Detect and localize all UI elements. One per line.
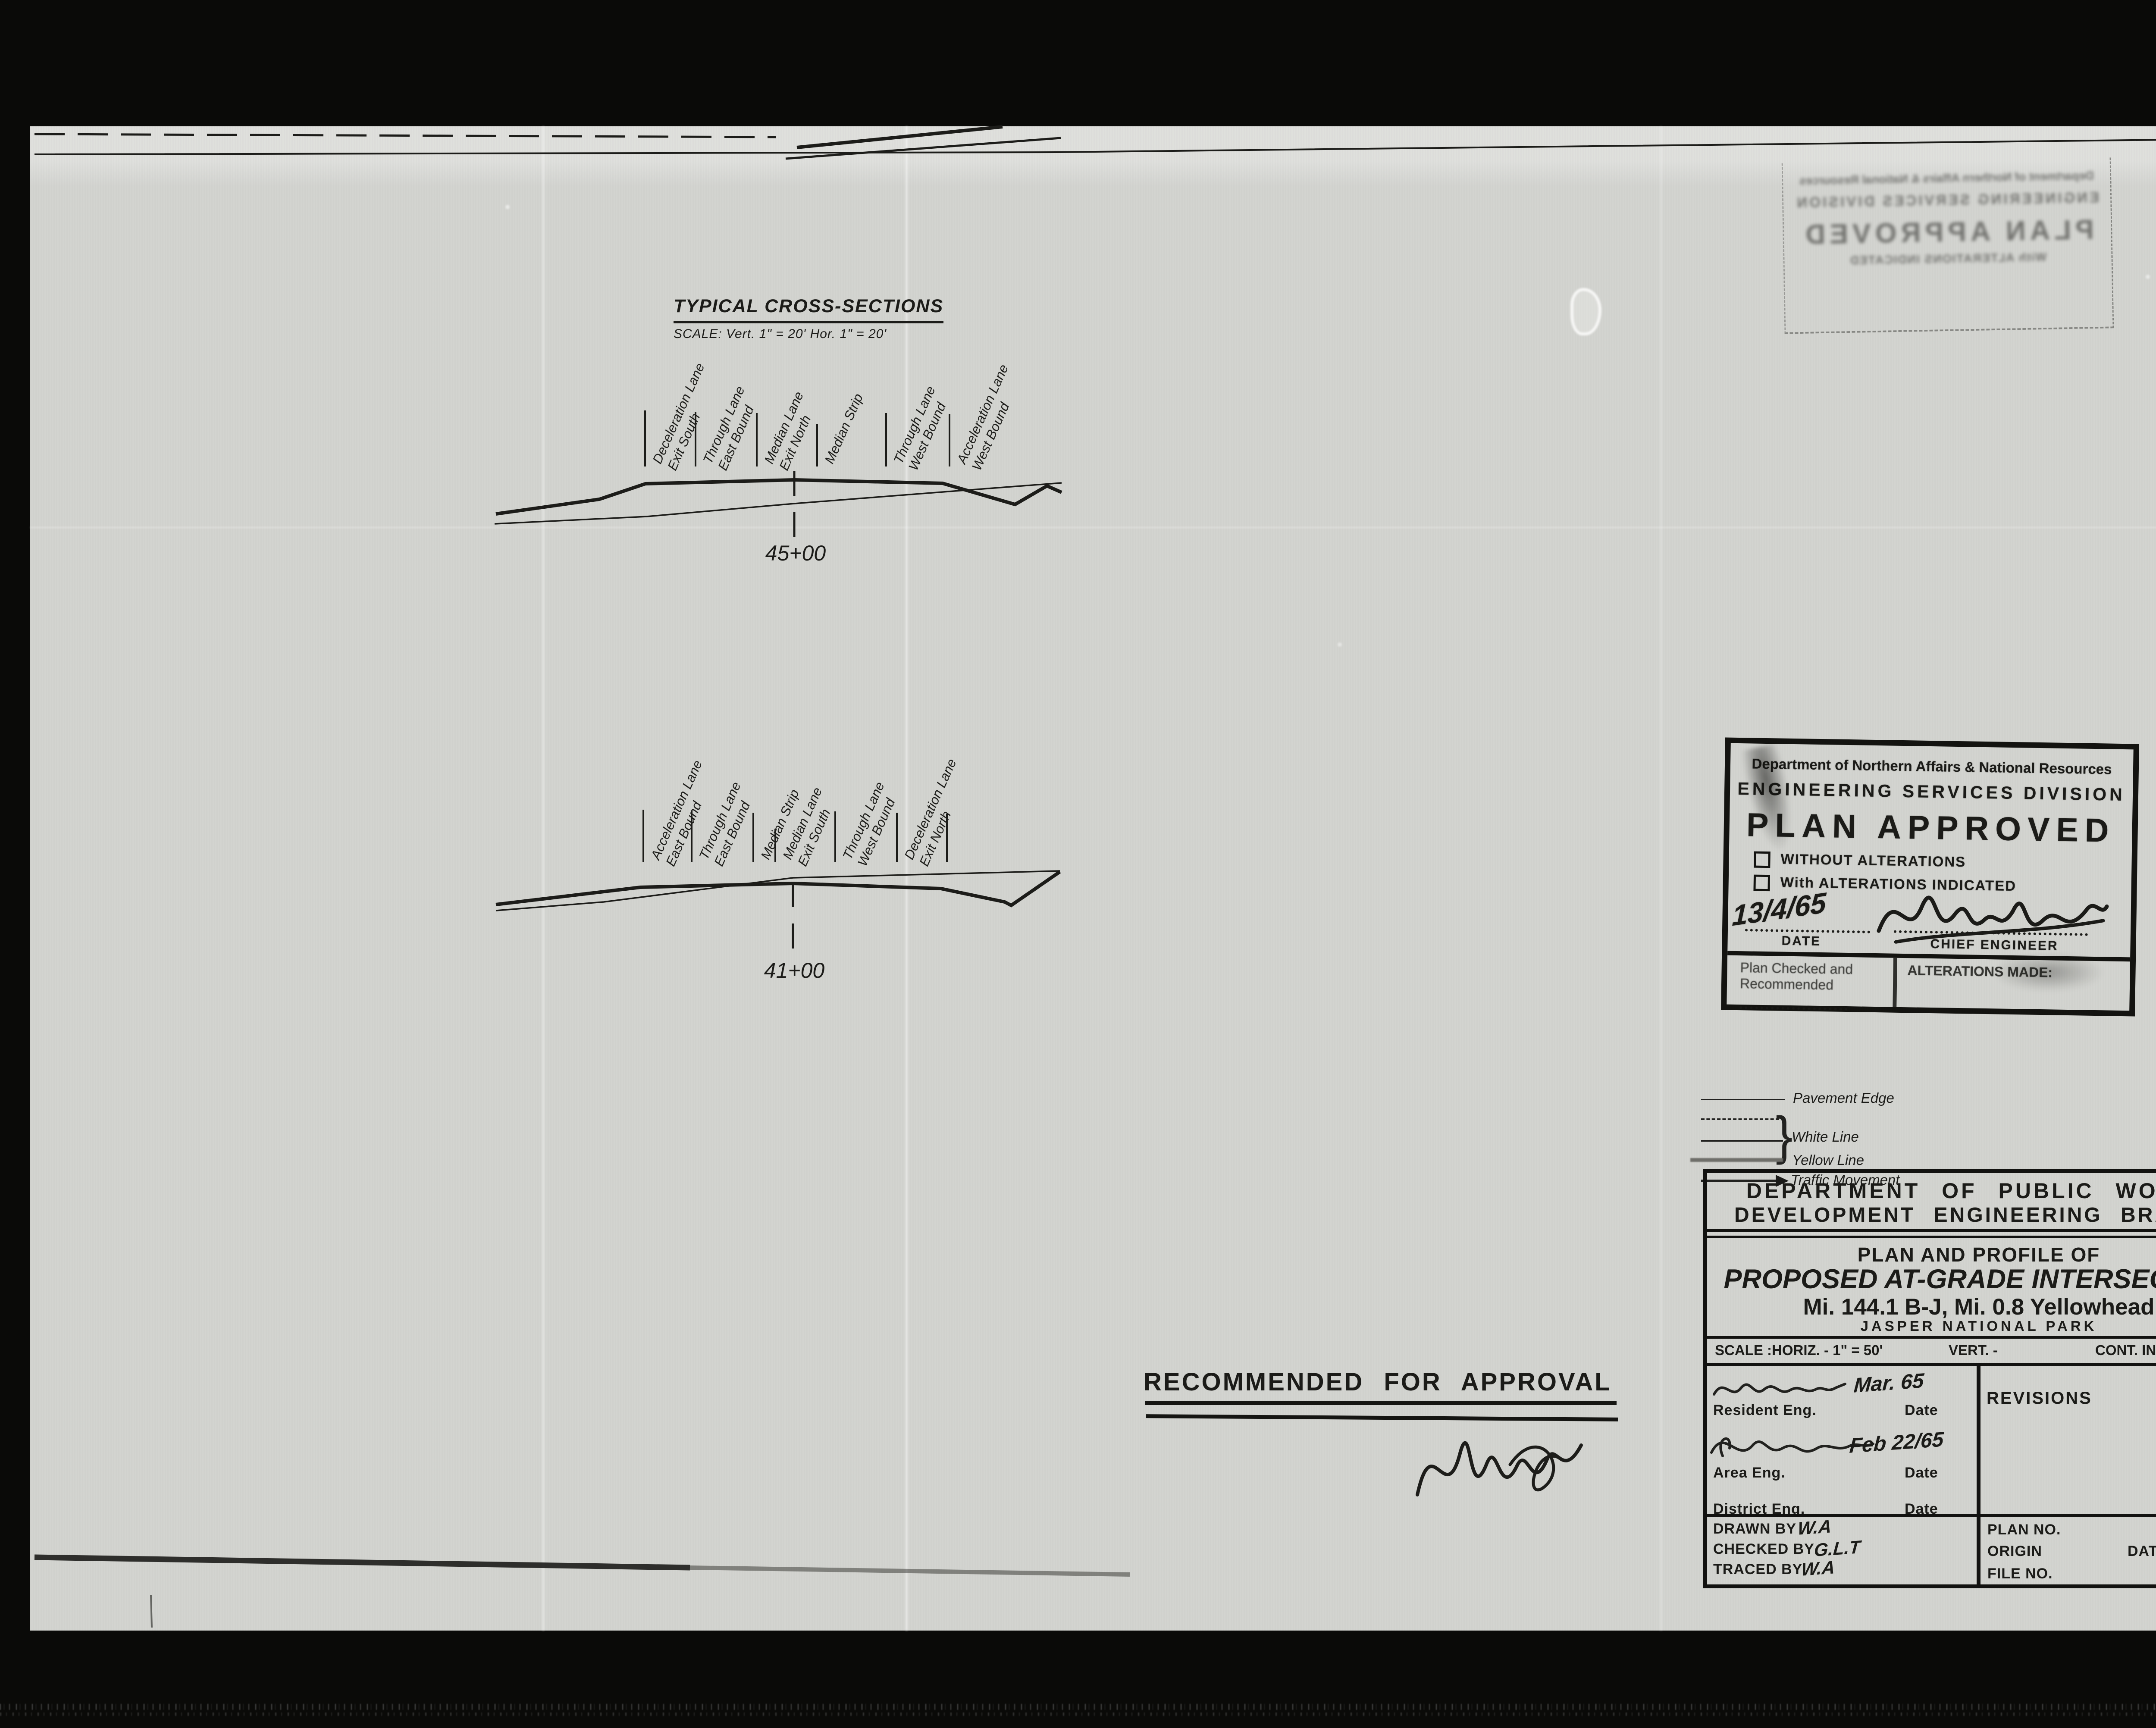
resident-date-label: Date	[1905, 1402, 1938, 1419]
divider	[1707, 1229, 2156, 1232]
department-line2: DEVELOPMENT ENGINEERING BRANCH	[1707, 1203, 2156, 1227]
lane-labels-41: Acceleration LaneEast Bound Through Lane…	[648, 757, 975, 869]
cross-sections-scale-note: SCALE: Vert. 1" = 20' Hor. 1" = 20'	[674, 327, 950, 341]
cross-sections-title: TYPICAL CROSS-SECTIONS	[674, 296, 943, 323]
resident-eng-date-handwritten: Mar. 65	[1853, 1369, 1924, 1398]
white-line-label: White Line	[1792, 1129, 1859, 1145]
scale-label: SCALE :	[1715, 1342, 1772, 1359]
pavement-edge-symbol	[1701, 1099, 1785, 1100]
ghost-title: PLAN APPROVED	[1784, 213, 2111, 250]
ghost-division: ENGINEERING SERVICES DIVISION	[1783, 189, 2111, 211]
revisions-label: REVISIONS	[1987, 1389, 2092, 1408]
resident-eng-label: Resident Eng.	[1713, 1402, 1817, 1419]
divider	[1707, 1336, 2156, 1339]
white-line-dashed-symbol	[1701, 1118, 1779, 1120]
recommended-for-approval-text: RECOMMENDED FOR APPROVAL	[1144, 1368, 1618, 1396]
divider	[1707, 1363, 2156, 1366]
checked-by-initials: G.L.T	[1813, 1537, 1861, 1561]
vert-scale: VERT. -	[1949, 1342, 1998, 1359]
stamp-checked-cell: Plan Checked and Recommended	[1727, 955, 1893, 1007]
horiz-scale: HORIZ. - 1" = 50'	[1772, 1342, 1883, 1359]
drawing-title-line4: JASPER NATIONAL PARK	[1707, 1318, 2156, 1334]
film-noise-strip	[0, 1712, 2156, 1716]
scanned-drawing-sheet: Deceleration LaneExit South Through Lane…	[0, 0, 2156, 1728]
stamp-date-label: DATE	[1781, 934, 1821, 949]
recommendation-signature	[1411, 1409, 1592, 1521]
file-no-label: FILE NO.	[1987, 1565, 2053, 1582]
origin-date-label: DATE	[2128, 1543, 2156, 1560]
stamp-chief-label: CHIEF ENGINEER	[1930, 937, 2059, 954]
plan-road-lines	[34, 127, 2156, 159]
drawing-title-line2: PROPOSED AT-GRADE INTERSECTION	[1707, 1264, 2156, 1295]
origin-label: ORIGIN	[1987, 1543, 2042, 1560]
traced-by-label: TRACED BY	[1713, 1561, 1802, 1578]
stamp-agency: Department of Northern Affairs & Nationa…	[1730, 755, 2133, 778]
legend-brace: }	[1776, 1105, 1792, 1167]
cross-sections-heading: TYPICAL CROSS-SECTIONS SCALE: Vert. 1" =…	[674, 296, 950, 341]
area-eng-label: Area Eng.	[1713, 1465, 1786, 1481]
plan-no-label: PLAN NO.	[1987, 1521, 2061, 1538]
drawn-by-initials: W.A	[1797, 1516, 1832, 1539]
divider	[1707, 1514, 2156, 1517]
film-noise-strip	[0, 1704, 2156, 1710]
divider	[1977, 1517, 1981, 1584]
pavement-edge-label: Pavement Edge	[1793, 1090, 1894, 1106]
stamp-checked-dotted-line	[1739, 992, 1848, 1011]
underline	[1145, 1401, 1617, 1405]
recommendation-block: RECOMMENDED FOR APPROVAL	[1144, 1368, 1618, 1396]
yellow-line-label: Yellow Line	[1792, 1152, 1864, 1168]
drawn-by-label: DRAWN BY	[1713, 1521, 1796, 1537]
divider	[1707, 1236, 2156, 1238]
svg-text:Median Strip: Median Strip	[821, 391, 866, 466]
department-line1: DEPARTMENT OF PUBLIC WORKS	[1707, 1178, 2156, 1203]
sheet-bottom-line	[34, 1557, 1130, 1628]
cross-section-45: Deceleration LaneExit South Through Lane…	[495, 361, 1062, 565]
title-block: DEPARTMENT OF PUBLIC WORKS DEVELOPMENT E…	[1703, 1169, 2156, 1588]
stamp-date-dotted-line	[1745, 916, 1871, 933]
drawing-title-line1: PLAN AND PROFILE OF	[1707, 1243, 2156, 1266]
white-line-solid-symbol	[1701, 1140, 1783, 1142]
stamp-checked-line2: Recommended	[1740, 976, 1893, 994]
ghost-option: With ALTERATIONS INDICATED	[1784, 249, 2111, 268]
area-date-label: Date	[1905, 1465, 1938, 1481]
contour-interval: CONT. INT. -	[2095, 1342, 2156, 1359]
drawing-title-line3: Mi. 144.1 B-J, Mi. 0.8 Yellowhead	[1707, 1294, 2156, 1320]
ink-smudge	[1992, 953, 2104, 992]
checkbox-with-alterations	[1753, 875, 1770, 892]
cross-section-41: Acceleration LaneEast Bound Through Lane…	[496, 757, 1060, 983]
yellow-line-symbol	[1690, 1158, 1783, 1162]
stamp-checked-line1: Plan Checked and	[1740, 960, 1893, 978]
station-41: 41+00	[764, 958, 825, 983]
ghost-stamp-content: Department of Northern Affairs & Nationa…	[1783, 169, 2113, 343]
traced-by-initials: W.A	[1800, 1557, 1836, 1580]
station-45: 45+00	[765, 541, 826, 565]
lane-labels-45: Deceleration LaneExit South Through Lane…	[649, 361, 1026, 473]
ghost-agency: Department of Northern Affairs & Nationa…	[1783, 169, 2110, 188]
checked-by-label: CHECKED BY	[1713, 1541, 1814, 1558]
ghost-stamp: Department of Northern Affairs & Nationa…	[1782, 157, 2114, 334]
